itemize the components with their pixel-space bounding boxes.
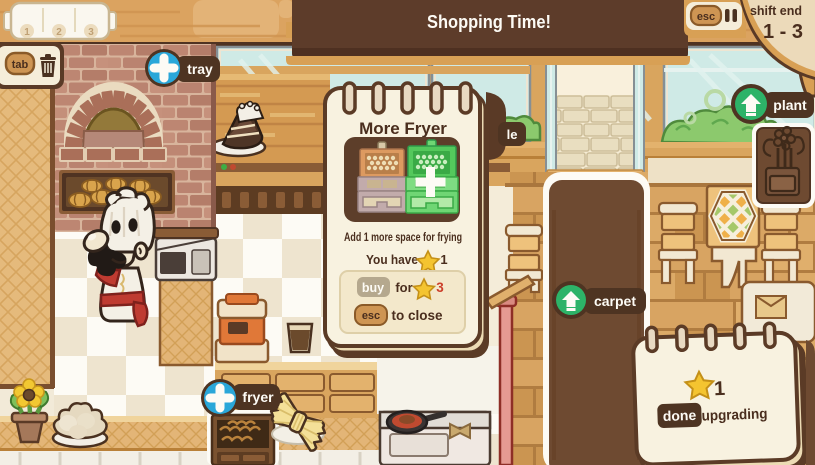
svg-text:le: le xyxy=(507,127,518,142)
svg-text:upgrading: upgrading xyxy=(701,406,768,424)
svg-text:esc: esc xyxy=(362,310,380,322)
svg-text:to close: to close xyxy=(391,308,443,323)
svg-text:plant: plant xyxy=(773,97,807,113)
svg-text:for: for xyxy=(395,280,412,295)
svg-text:esc: esc xyxy=(697,11,715,23)
svg-text:3: 3 xyxy=(436,280,444,295)
svg-text:3: 3 xyxy=(88,27,94,38)
svg-text:2: 2 xyxy=(56,27,62,38)
svg-text:Shopping Time!: Shopping Time! xyxy=(427,12,551,32)
svg-text:tray: tray xyxy=(187,61,213,77)
svg-text:fryer: fryer xyxy=(242,389,274,405)
svg-text:1: 1 xyxy=(440,252,447,267)
svg-text:1 - 3: 1 - 3 xyxy=(763,21,803,43)
svg-text:buy: buy xyxy=(362,281,384,295)
svg-text:shift end: shift end xyxy=(750,4,802,18)
svg-text:tab: tab xyxy=(12,59,29,71)
svg-text:You have: You have xyxy=(366,253,418,267)
svg-text:1: 1 xyxy=(24,27,30,38)
svg-text:More Fryer: More Fryer xyxy=(359,119,447,138)
svg-text:1: 1 xyxy=(714,378,726,400)
svg-text:Add 1 more space for frying: Add 1 more space for frying xyxy=(344,232,462,244)
svg-text:carpet: carpet xyxy=(594,293,636,309)
svg-text:done: done xyxy=(663,407,697,424)
